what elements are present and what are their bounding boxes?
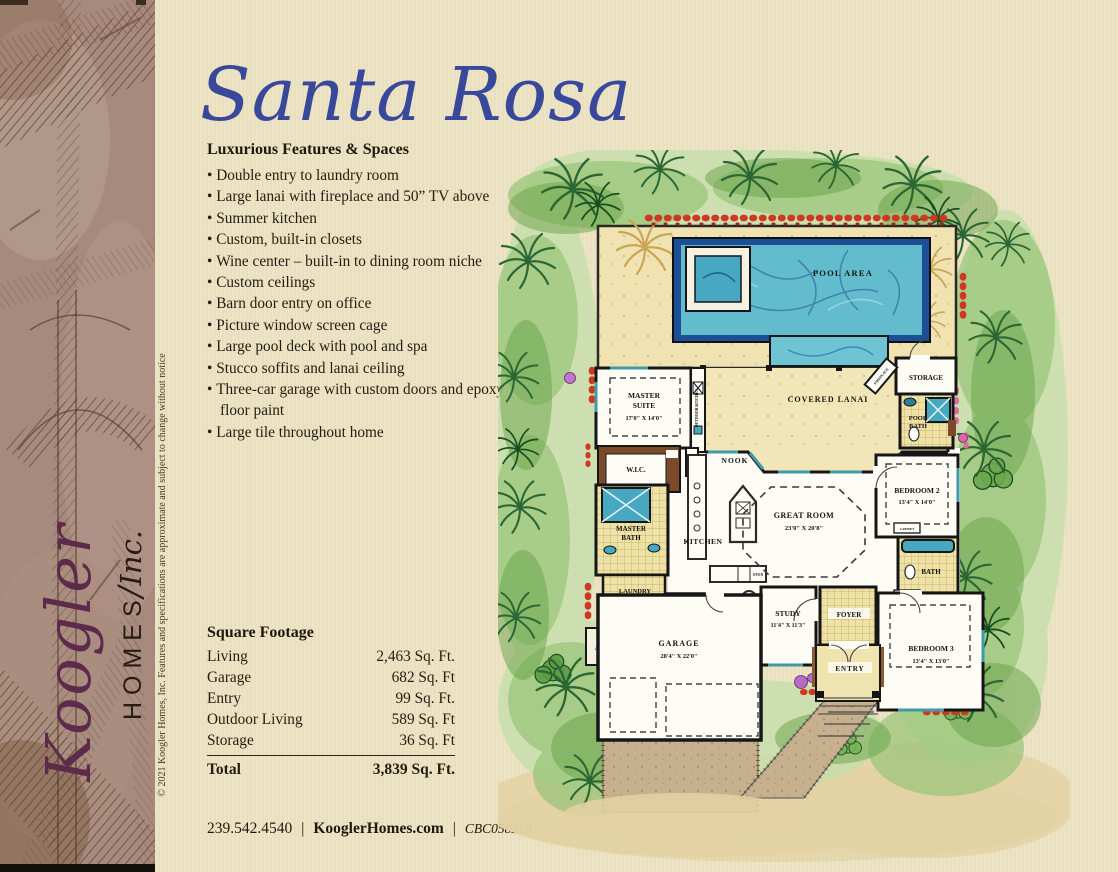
- label-garage-dims: 28'4" X 22'0": [660, 653, 697, 660]
- sqft-label: Storage: [207, 730, 254, 751]
- feature-item: Large lanai with fireplace and 50” TV ab…: [207, 186, 519, 207]
- label-master-bath: BATH: [621, 534, 641, 542]
- brand-homes-inc: HOMES/Inc.: [111, 485, 145, 765]
- label-pool-bath: BATH: [909, 423, 927, 430]
- separator: |: [292, 820, 313, 837]
- label-great-room-dims: 23'0" X 20'8": [785, 525, 823, 532]
- features-list: Double entry to laundry room Large lanai…: [207, 165, 519, 443]
- website: KooglerHomes.com: [313, 820, 443, 837]
- label-covered-lanai: COVERED LANAI: [788, 395, 869, 404]
- label-study: STUDY: [775, 609, 801, 618]
- room-pool-bath: POOL BATH: [900, 394, 956, 448]
- label-pool-bath: POOL: [909, 415, 928, 422]
- phone-number: 239.542.4540: [207, 820, 292, 837]
- sqft-value: 682 Sq. Ft: [392, 667, 455, 688]
- feature-item: Barn door entry on office: [207, 293, 519, 314]
- feature-item: Double entry to laundry room: [207, 165, 519, 186]
- label-storage: STORAGE: [909, 374, 943, 382]
- feature-item: Custom, built-in closets: [207, 229, 519, 250]
- label-master-suite: MASTER: [628, 391, 661, 400]
- features-section: Luxurious Features & Spaces Double entry…: [207, 141, 519, 443]
- room-master-suite: MASTER SUITE 17'0" X 14'0": [596, 368, 691, 448]
- sqft-row-storage: Storage 36 Sq. Ft: [207, 730, 455, 751]
- label-pool-area: POOL AREA: [813, 268, 873, 278]
- label-master-suite: SUITE: [633, 401, 656, 410]
- brand-homes-text: HOMES: [119, 593, 147, 720]
- sqft-row-outdoor-living: Outdoor Living 589 Sq. Ft: [207, 709, 455, 730]
- label-garage: GARAGE: [658, 639, 699, 648]
- brand-inc-text: Inc.: [114, 530, 148, 586]
- brand-koogler-script: Koogler: [29, 432, 109, 872]
- sqft-value: 36 Sq. Ft: [399, 730, 455, 751]
- brochure-page: Koogler HOMES/Inc. © 2021 Koogler Homes,…: [0, 0, 1118, 872]
- spa: [686, 247, 750, 311]
- label-oven: OVEN: [753, 573, 764, 577]
- sqft-value: 99 Sq. Ft.: [395, 688, 455, 709]
- house: COVERED LANAI MASTER SUITE 17'0" X 14'0"…: [586, 340, 983, 740]
- brand-slash: /: [111, 587, 149, 598]
- feature-item: Custom ceilings: [207, 272, 519, 293]
- label-bedroom-3-dims: 13'4" X 13'0": [912, 658, 949, 665]
- sqft-total-value: 3,839 Sq. Ft.: [373, 761, 455, 779]
- square-footage-heading: Square Footage: [207, 624, 455, 642]
- sqft-label: Entry: [207, 688, 241, 709]
- label-entry: ENTRY: [835, 665, 864, 673]
- square-footage-section: Square Footage Living 2,463 Sq. Ft. Gara…: [207, 624, 455, 779]
- feature-item: Picture window screen cage: [207, 315, 519, 336]
- sqft-row-entry: Entry 99 Sq. Ft.: [207, 688, 455, 709]
- sqft-row-living: Living 2,463 Sq. Ft.: [207, 646, 455, 667]
- label-bedroom-2: BEDROOM 2: [894, 486, 939, 495]
- label-bath: BATH: [921, 568, 941, 576]
- label-foyer: FOYER: [837, 611, 862, 619]
- copyright-notice: © 2021 Koogler Homes, Inc. Features and …: [156, 305, 170, 845]
- outdoor-kitchen: OUTDOOR KITCHEN: [691, 368, 705, 452]
- feature-item: Wine center – built-in to dining room ni…: [207, 251, 519, 272]
- sun-shelf: [770, 336, 888, 366]
- sqft-value: 589 Sq. Ft: [392, 709, 455, 730]
- sqft-label: Living: [207, 646, 248, 667]
- sqft-label: Garage: [207, 667, 251, 688]
- feature-item: Large tile throughout home: [207, 422, 519, 443]
- label-bedroom-3: BEDROOM 3: [908, 644, 953, 653]
- sqft-value: 2,463 Sq. Ft.: [376, 646, 455, 667]
- sqft-total-label: Total: [207, 761, 241, 779]
- label-master-suite-dims: 17'0" X 14'0": [625, 415, 662, 422]
- contact-line: 239.542.4540|KooglerHomes.com|CBC058219: [207, 820, 532, 838]
- room-bath: BATH: [898, 537, 958, 593]
- label-outdoor-kitchen: OUTDOOR KITCHEN: [695, 388, 699, 427]
- label-great-room: GREAT ROOM: [774, 511, 834, 520]
- room-bedroom-3: BEDROOM 3 13'4" X 13'0": [878, 590, 983, 710]
- feature-item: Large pool deck with pool and spa: [207, 336, 519, 357]
- label-study-dims: 11'4" X 11'3": [771, 623, 806, 629]
- sqft-total-row: Total 3,839 Sq. Ft.: [207, 755, 455, 779]
- label-wic: W.I.C.: [626, 466, 646, 474]
- label-nook: NOOK: [722, 456, 749, 465]
- feature-item: Summer kitchen: [207, 208, 519, 229]
- label-master-bath: MASTER: [616, 525, 647, 533]
- room-master-bath: MASTER BATH: [596, 485, 668, 575]
- features-heading: Luxurious Features & Spaces: [207, 141, 519, 159]
- feature-item: Stucco soffits and lanai ceiling: [207, 358, 519, 379]
- feature-item: Three-car garage with custom doors and e…: [207, 379, 519, 422]
- label-cabinet: CABINET: [900, 527, 915, 531]
- sqft-label: Outdoor Living: [207, 709, 303, 730]
- label-kitchen: KITCHEN: [684, 537, 723, 546]
- sidebar-artwork: Koogler HOMES/Inc.: [0, 0, 155, 872]
- label-bedroom-2-dims: 13'4" X 14'0": [898, 499, 935, 506]
- room-foyer: FOYER: [820, 587, 876, 645]
- sqft-row-garage: Garage 682 Sq. Ft: [207, 667, 455, 688]
- floor-plan-illustration: POOL AREA: [498, 150, 1070, 866]
- room-garage: GARAGE 28'4" X 22'0": [598, 591, 761, 740]
- plan-title: Santa Rosa: [200, 52, 632, 138]
- separator: |: [444, 820, 465, 837]
